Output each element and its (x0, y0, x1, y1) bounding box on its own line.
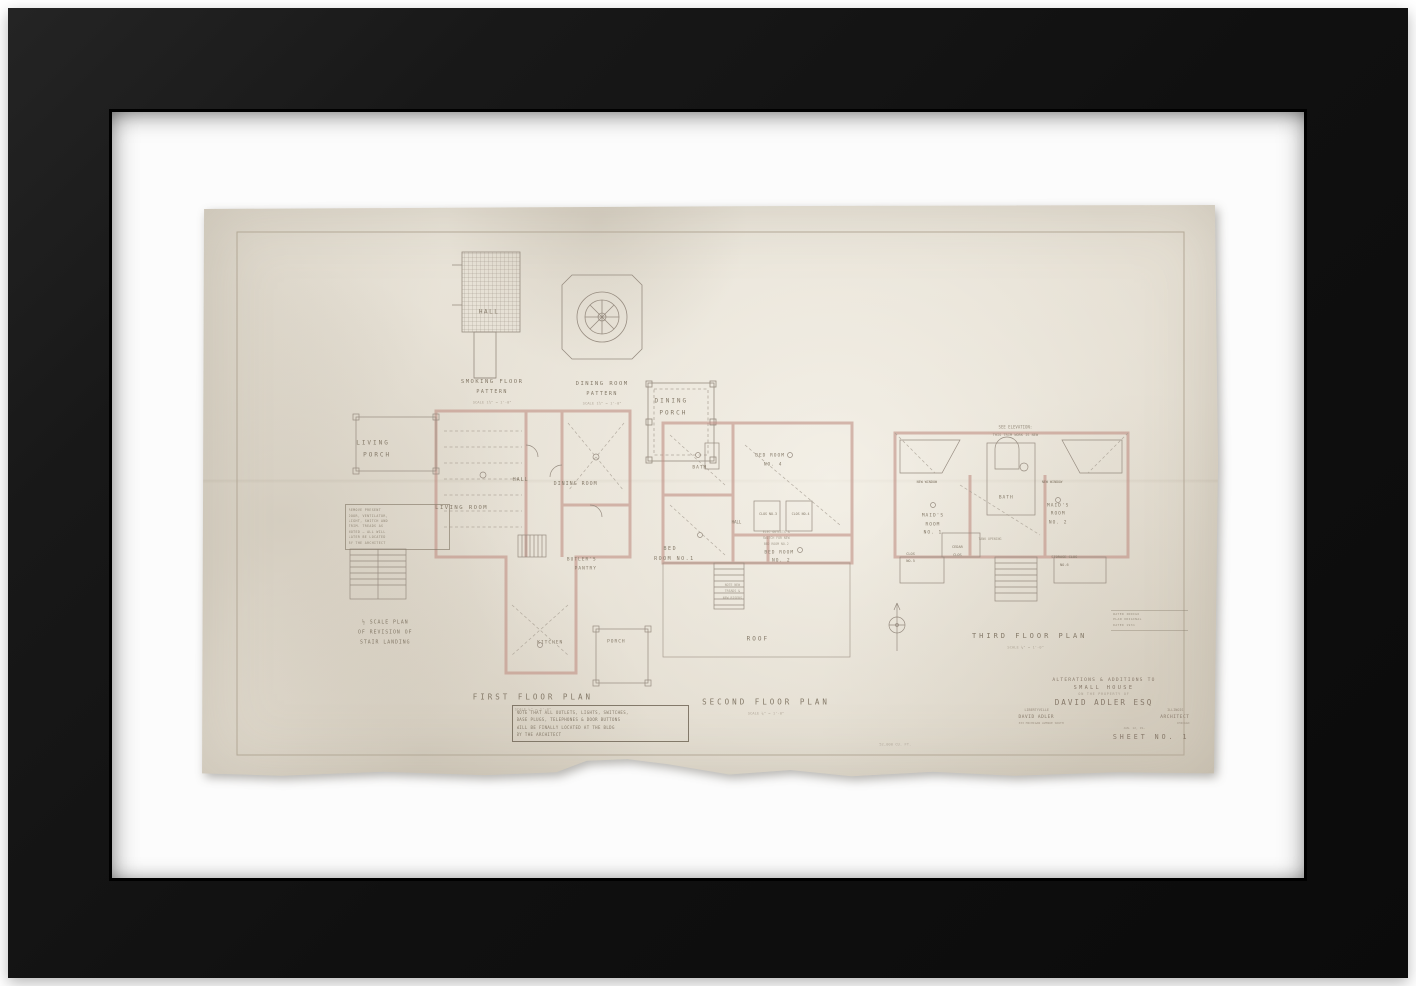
hall-pattern-label: HALL (479, 308, 499, 315)
dining-room-label: DINING ROOM (554, 481, 598, 487)
plan-label: NO. 2 (1049, 521, 1068, 526)
title-line-2: SMALL HOUSE (1018, 685, 1189, 691)
note-line: DATED 1931 (1113, 623, 1186, 629)
plan-label: NEW RISERS (723, 596, 742, 600)
note-line: BASE PLUGS, TELEPHONES & DOOR BUTTONS (517, 716, 684, 723)
bed-room-2-label: BED ROOM (764, 550, 794, 555)
note-line: WILL BE FINALLY LOCATED AT THE BLDG (517, 724, 684, 731)
first-floor-plan-title: FIRST FLOOR PLAN (473, 693, 593, 702)
plan-label: PORCH (363, 451, 391, 458)
plan-label: SCALE ¼" = 1'-0" (748, 711, 785, 716)
plan-label: PORCH (607, 640, 626, 645)
note-line: NOTE THAT ALL OUTLETS, LIGHTS, SWITCHES, (517, 709, 684, 716)
sheet-number: SHEET NO. 1 (1018, 733, 1189, 741)
maids-room-2-label: MAID'S (1047, 503, 1069, 508)
title-block: ALTERATIONS & ADDITIONS TO SMALL HOUSE O… (1018, 678, 1189, 741)
plan-label: OF REVISION OF (358, 631, 412, 636)
plan-label: STAIR LANDING (360, 640, 411, 645)
plan-label: CEDAR (952, 545, 963, 549)
plan-label: SCALE 1½" = 1'-0" (473, 399, 512, 404)
title-line-1: ALTERATIONS & ADDITIONS TO (1018, 678, 1189, 683)
framed-architectural-drawing: HALLSMOKING FLOORPATTERNSCALE 1½" = 1'-0… (0, 0, 1416, 986)
plan-label: ROOM NO.1 (654, 556, 695, 562)
second-floor-plan-title: SECOND FLOOR PLAN (702, 697, 830, 706)
plan-label: NO.5 (906, 559, 915, 563)
living-porch-label: LIVING (356, 439, 390, 446)
kitchen-label: KITCHEN (537, 640, 563, 645)
plan-label: ROOM (1051, 512, 1066, 517)
architect-role: ARCHITECT (1160, 715, 1189, 720)
owner-name: DAVID ADLER ESQ (1018, 698, 1189, 707)
plan-label: NO.6 (1060, 563, 1069, 567)
owner-state: ILLINOIS (1167, 708, 1183, 712)
butlers-pantry-label: BUTLER'S (567, 558, 597, 563)
drawing-sheet-wrap: HALLSMOKING FLOORPATTERNSCALE 1½" = 1'-0… (200, 205, 1218, 778)
revision-stamp: WATER INDIGOPLAN ORIGINALDATED 1931 (1111, 610, 1188, 631)
plan-label: PORCH (659, 409, 687, 416)
third-floor-plan-title: THIRD FLOOR PLAN (972, 632, 1087, 640)
plan-label: STORAGE CLOS (1051, 555, 1077, 559)
mat-board: HALLSMOKING FLOORPATTERNSCALE 1½" = 1'-0… (112, 112, 1304, 878)
drawing-date: JAN. 12, 19— (1018, 726, 1189, 730)
plan-label: CLOS (906, 552, 915, 556)
title-line-3: ON THE PROPERTY OF (1018, 692, 1189, 696)
plan-label: NO. 1 (924, 531, 943, 536)
plan-label: TANK OPENING (978, 537, 1001, 541)
general-note-box: NOTE THAT ALL OUTLETS, LIGHTS, SWITCHES,… (512, 705, 689, 742)
stair-landing-caption: ½ SCALE PLAN (362, 621, 409, 626)
plan-label: CLOS NO.4 (792, 512, 810, 516)
plan-label: NO. 2 (772, 559, 791, 564)
dining-room-pattern-title: DINING ROOM (576, 381, 629, 387)
plan-label: HALL (513, 477, 529, 483)
plan-label: NEW WINDOW (1042, 480, 1062, 484)
plan-label: ROOM (926, 522, 941, 527)
plan-label: SCALE 1½" = 1'-0" (583, 401, 622, 406)
plan-label: SEE ELEVATION: (999, 424, 1033, 429)
note-line: BY THE ARCHITECT (349, 541, 447, 546)
plan-label: PANTRY (575, 567, 597, 572)
plan-label: NO. 4 (764, 463, 783, 468)
owner-city: LIBERTYVILLE (1024, 708, 1049, 712)
note-line: BY THE ARCHITECT (517, 731, 684, 738)
plan-label: BED ROOM NO.2 (764, 542, 789, 546)
volume-note: 52,000 CU. FT. (879, 741, 911, 746)
plan-label: PATTERN (586, 391, 618, 397)
architect-address: 333 MICHIGAN AVENUE SOUTH (1018, 721, 1063, 725)
plan-label: THIS TRIM WORK IS NEW (993, 433, 1038, 437)
architect-name: DAVID ADLER (1018, 715, 1054, 720)
plan-label: BATH (692, 466, 707, 471)
drawing-sheet: HALLSMOKING FLOORPATTERNSCALE 1½" = 1'-0… (200, 205, 1218, 778)
architect-city: CHICAGO (1177, 721, 1190, 725)
roof-label: ROOF (747, 635, 769, 642)
plan-label: NOTE NEW (725, 583, 740, 587)
picture-frame: HALLSMOKING FLOORPATTERNSCALE 1½" = 1'-0… (8, 8, 1408, 978)
plan-label: NEW WINDOW (917, 480, 937, 484)
plan-label: CLOS (953, 553, 962, 557)
plan-label: BATH (999, 495, 1014, 500)
service-note-box: REMOVE PRESENTDOOR, VENTILATOR,LIGHT, SW… (345, 504, 451, 550)
plan-label: PATTERN (476, 389, 508, 395)
maids-room-1-label: MAID'S (922, 514, 944, 519)
plan-label: HALL (732, 519, 742, 524)
plan-label: CLOS NO.3 (759, 512, 777, 516)
dining-porch-label: DINING (654, 397, 688, 404)
plan-label: SWITCH FOR NEW (763, 536, 790, 540)
plan-label: SCALE ¼" = 1'-0" (1007, 644, 1044, 649)
bed-room-1-label: BED (664, 546, 678, 552)
plan-label: ELEC OUTLETS & (763, 530, 790, 534)
bed-room-4-label: BED ROOM (755, 453, 785, 458)
plan-label: TREADS & (725, 589, 740, 593)
smoking-floor-pattern-title: SMOKING FLOOR (461, 379, 524, 385)
